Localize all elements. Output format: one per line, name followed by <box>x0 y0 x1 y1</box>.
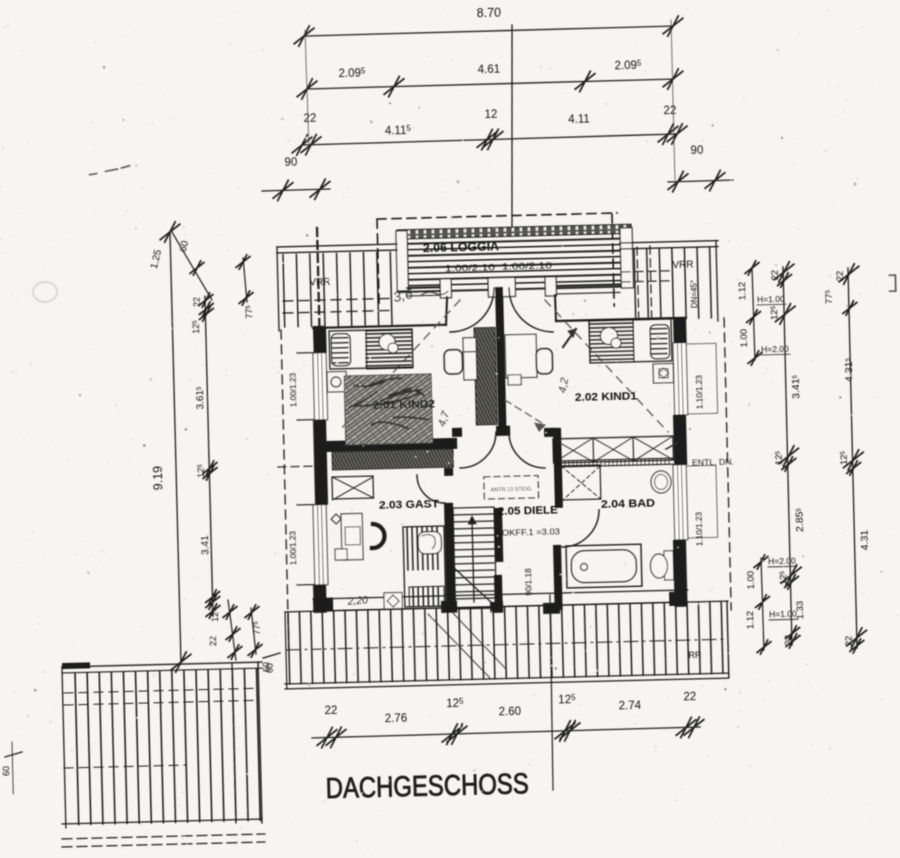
svg-text:1.00: 1.00 <box>746 571 757 590</box>
svg-text:2,20: 2,20 <box>346 594 368 608</box>
svg-text:ENTL. DN.: ENTL. DN. <box>692 457 734 467</box>
svg-text:22: 22 <box>192 297 202 307</box>
svg-text:2.05 DIELE: 2.05 DIELE <box>498 504 558 517</box>
svg-text:RR: RR <box>688 650 702 660</box>
svg-text:1.10/1.23: 1.10/1.23 <box>695 511 705 546</box>
svg-text:2.76: 2.76 <box>385 713 408 726</box>
svg-text:H=2.00: H=2.00 <box>768 556 796 567</box>
svg-text:VRR: VRR <box>309 277 330 289</box>
svg-text:ANTR.10 STEIG: ANTR.10 STEIG <box>491 487 532 494</box>
svg-text:22: 22 <box>303 113 316 125</box>
svg-text:22: 22 <box>770 270 781 281</box>
svg-text:1.12: 1.12 <box>737 282 748 301</box>
svg-text:4.61: 4.61 <box>478 64 501 77</box>
svg-text:22: 22 <box>663 105 676 117</box>
svg-text:1.00: 1.00 <box>739 329 750 348</box>
svg-text:2.04 BAD: 2.04 BAD <box>601 497 655 510</box>
svg-text:H=1.00: H=1.00 <box>757 294 785 305</box>
svg-text:60: 60 <box>261 662 271 672</box>
svg-text:1.33: 1.33 <box>795 601 806 620</box>
svg-text:8.70: 8.70 <box>477 6 502 21</box>
svg-text:2.03 GAST: 2.03 GAST <box>379 498 440 511</box>
svg-text:VRR: VRR <box>672 260 693 272</box>
svg-text:DACHGESCHOSS: DACHGESCHOSS <box>325 768 529 805</box>
svg-text:22: 22 <box>324 705 337 717</box>
svg-text:22: 22 <box>783 635 794 646</box>
svg-text:1.00/2.10: 1.00/2.10 <box>502 260 552 272</box>
svg-text:90/1.18: 90/1.18 <box>524 568 534 596</box>
svg-text:22: 22 <box>835 271 846 282</box>
svg-text:2.06 LOGGIA: 2.06 LOGGIA <box>423 241 499 255</box>
svg-text:2.74: 2.74 <box>619 700 642 713</box>
svg-text:90: 90 <box>284 157 297 169</box>
svg-text:1.00/1.23: 1.00/1.23 <box>289 372 299 407</box>
svg-text:OKFF.1 =3.03: OKFF.1 =3.03 <box>502 526 561 537</box>
svg-text:9.19: 9.19 <box>151 466 166 491</box>
svg-text:3.41: 3.41 <box>200 535 211 555</box>
svg-text:1.00/2.10: 1.00/2.10 <box>445 262 495 274</box>
svg-text:H=1.00: H=1.00 <box>769 609 797 620</box>
svg-text:22: 22 <box>208 636 218 646</box>
svg-text:60: 60 <box>1 766 11 776</box>
svg-text:2.01 KIND2: 2.01 KIND2 <box>373 398 435 412</box>
svg-text:12: 12 <box>484 109 497 121</box>
svg-text:2.02 KIND1: 2.02 KIND1 <box>575 390 637 404</box>
svg-text:1.12: 1.12 <box>745 611 756 630</box>
svg-text:DN=45°: DN=45° <box>690 280 700 309</box>
svg-text:1.10/1.23: 1.10/1.23 <box>695 374 705 409</box>
svg-text:4.11: 4.11 <box>568 114 590 127</box>
svg-text:90: 90 <box>690 145 703 157</box>
svg-text:22: 22 <box>683 691 696 703</box>
svg-text:1.00/1.23: 1.00/1.23 <box>289 530 299 565</box>
svg-text:2.60: 2.60 <box>499 706 522 719</box>
svg-text:4.31: 4.31 <box>859 530 871 551</box>
svg-text:22: 22 <box>844 636 855 647</box>
